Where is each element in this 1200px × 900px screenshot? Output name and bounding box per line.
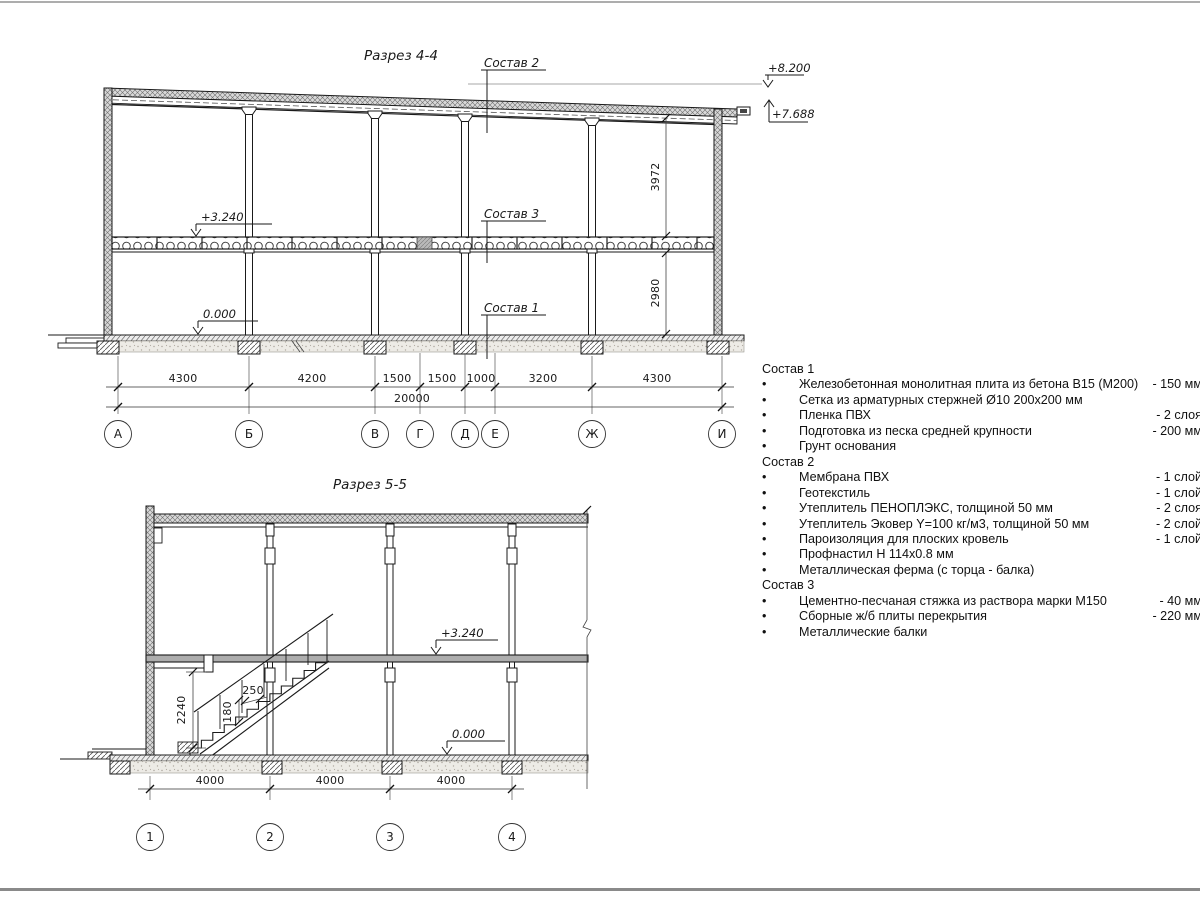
dimension-line-spans: 4000 4000 4000 — [138, 774, 524, 793]
stair-height-dim: 2240 — [175, 668, 206, 752]
elevation-value: +8.200 — [768, 61, 811, 75]
material-item: •Подготовка из песка средней крупности- … — [762, 424, 1200, 439]
label-sostav-2: Состав 2 — [481, 56, 546, 133]
material-item: •Сборные ж/б плиты перекрытия- 220 мм — [762, 609, 1200, 624]
bullet-icon: • — [762, 532, 799, 547]
bullet-icon: • — [762, 486, 799, 501]
stair-railing — [194, 614, 333, 745]
axis-label: Ж — [586, 427, 599, 441]
roof-band — [146, 514, 588, 527]
dim-value: 4000 — [437, 774, 466, 787]
material-item: •Утеплитель ПЕНОПЛЭКС, толщиной 50 мм- 2… — [762, 501, 1200, 516]
bullet-icon: • — [762, 609, 799, 624]
axis-label: Е — [491, 427, 499, 441]
dim-value: 2980 — [649, 279, 662, 308]
right-wall — [714, 109, 722, 335]
axis-bubbles: А Б В Г Д Е Ж И — [105, 421, 736, 448]
axis-label: А — [114, 427, 123, 441]
stair-base-step — [178, 742, 198, 753]
bullet-icon: • — [762, 547, 799, 562]
material-item: •Цементно-песчаная стяжка из раствора ма… — [762, 594, 1200, 609]
bullet-icon: • — [762, 563, 799, 578]
entrance-step — [88, 752, 112, 759]
elevation-value: 0.000 — [203, 307, 236, 321]
material-item: •Металлическая ферма (с торца - балка) — [762, 563, 1200, 578]
bullet-icon: • — [762, 408, 799, 423]
axis-label: В — [371, 427, 379, 441]
dim-value: 4000 — [196, 774, 225, 787]
material-item: •Металлические балки — [762, 625, 1200, 640]
bullet-icon: • — [762, 517, 799, 532]
dim-value: 2240 — [175, 696, 188, 725]
axis-label: Б — [245, 427, 253, 441]
axis-label: 2 — [266, 830, 274, 844]
section-4-4: Разрез 4-4 — [48, 48, 815, 448]
material-item: •Геотекстиль- 1 слой — [762, 486, 1200, 501]
axis-label: Г — [416, 427, 423, 441]
elevation-mark-zero: 0.000 — [442, 727, 505, 754]
elevation-value: +7.688 — [772, 107, 815, 121]
drawing-sheet: Разрез 4-4 — [0, 0, 1200, 900]
material-item: •Сетка из арматурных стержней Ø10 200x20… — [762, 393, 1200, 408]
materials-group-title: Состав 1 — [762, 362, 1200, 377]
section-4-4-title: Разрез 4-4 — [364, 48, 438, 64]
material-item: •Утеплитель Эковер Y=100 кг/м3, толщиной… — [762, 517, 1200, 532]
bullet-icon: • — [762, 625, 799, 640]
dim-value: 4200 — [298, 372, 327, 385]
bullet-icon: • — [762, 377, 799, 392]
materials-group-title: Состав 3 — [762, 578, 1200, 593]
dim-value: 3972 — [649, 163, 662, 192]
dim-value: 1500 — [428, 372, 457, 385]
dim-value: 4300 — [643, 372, 672, 385]
axis-label: Д — [460, 427, 469, 441]
axis-label: 4 — [508, 830, 516, 844]
leader-label: Состав 2 — [484, 56, 539, 70]
dim-value: 180 — [221, 701, 234, 723]
section-5-5: Разрез 5-5 — [60, 477, 591, 851]
monolithic-slab-patch — [417, 237, 432, 249]
materials-group-title: Состав 2 — [762, 455, 1200, 470]
materials-legend: Состав 1 •Железобетонная монолитная плит… — [762, 362, 1200, 640]
roof-assembly — [104, 88, 750, 125]
elevation-value: 0.000 — [452, 727, 485, 741]
upper-columns — [242, 107, 599, 237]
label-sostav-3: Состав 3 — [481, 207, 546, 263]
left-wall — [104, 88, 112, 335]
elevation-mark-floor: +3.240 — [431, 626, 498, 654]
floor-band — [146, 655, 588, 672]
section-extent-line — [583, 506, 591, 789]
material-item: •Мембрана ПВХ- 1 слой — [762, 470, 1200, 485]
stair-opening-beam — [204, 655, 213, 672]
material-item: •Пароизоляция для плоских кровель- 1 сло… — [762, 532, 1200, 547]
dim-value: 1500 — [383, 372, 412, 385]
dim-value: 4300 — [169, 372, 198, 385]
elevation-mark-roof-top: +8.200 — [763, 61, 811, 87]
floor-slab — [112, 237, 714, 252]
bullet-icon: • — [762, 424, 799, 439]
leader-label: Состав 1 — [484, 301, 539, 315]
material-item: •Профнастил Н 114x0.8 мм — [762, 547, 1200, 562]
dim-value: 20000 — [394, 392, 430, 405]
material-item: •Пленка ПВХ- 2 слоя — [762, 408, 1200, 423]
ground-slab — [48, 335, 744, 354]
bullet-icon: • — [762, 594, 799, 609]
wall-pilaster — [154, 528, 162, 543]
dim-value: 3200 — [529, 372, 558, 385]
bullet-icon: • — [762, 501, 799, 516]
vertical-dim-lower: 2980 — [649, 249, 670, 338]
material-item: •Грунт основания — [762, 439, 1200, 454]
elevation-mark-roof-low: +7.688 — [764, 100, 815, 122]
dim-value: 250 — [242, 684, 264, 697]
bullet-icon: • — [762, 470, 799, 485]
stair-riser-dim: 180 — [221, 696, 243, 726]
lower-columns — [244, 249, 597, 335]
dim-value: 1000 — [467, 372, 496, 385]
axis-label: 3 — [386, 830, 394, 844]
elevation-mark-floor: +3.240 — [191, 210, 272, 236]
axis-label: 1 — [146, 830, 154, 844]
bullet-icon: • — [762, 393, 799, 408]
roof-edge-beam-core — [740, 109, 747, 113]
leader-label: Состав 3 — [484, 207, 539, 221]
axis-label: И — [718, 427, 727, 441]
section-5-5-title: Разрез 5-5 — [333, 477, 407, 493]
dim-value: 4000 — [316, 774, 345, 787]
material-item: •Железобетонная монолитная плита из бето… — [762, 377, 1200, 392]
elevation-value: +3.240 — [201, 210, 244, 224]
bullet-icon: • — [762, 439, 799, 454]
vertical-dim-upper: 3972 — [649, 114, 670, 240]
left-wall — [146, 506, 154, 757]
elevation-value: +3.240 — [441, 626, 484, 640]
axis-bubbles: 1 2 3 4 — [137, 824, 526, 851]
